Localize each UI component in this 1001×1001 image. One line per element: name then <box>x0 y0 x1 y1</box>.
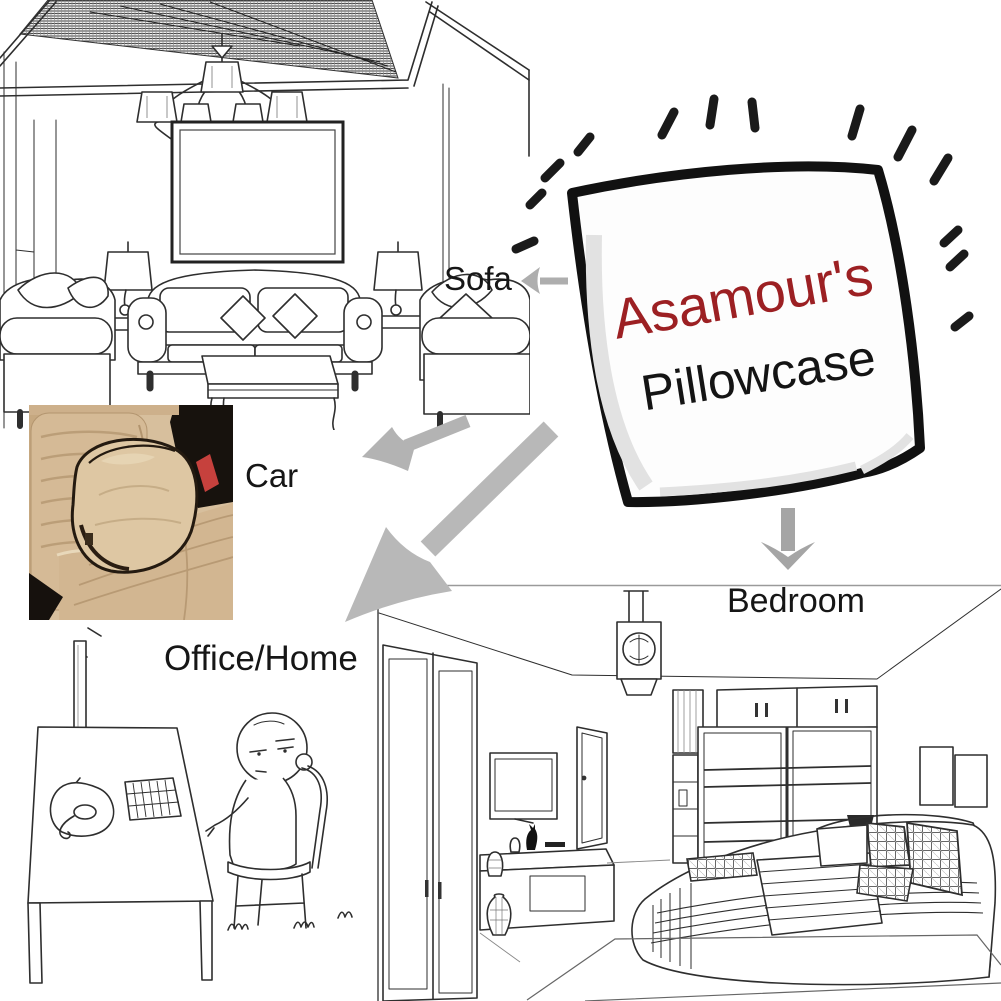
office-home-label: Office/Home <box>164 641 358 676</box>
pillowcase-usage-diagram: Asamour's Pillowcase Sofa Car Office/Hom… <box>0 0 1001 1001</box>
arrow-to-car-icon <box>362 421 468 471</box>
sofa-label: Sofa <box>444 262 512 295</box>
arrows-layer <box>0 0 1001 1001</box>
car-label: Car <box>245 459 298 492</box>
arrow-to-bedroom-icon <box>761 508 815 570</box>
bedroom-label: Bedroom <box>727 584 865 618</box>
arrow-to-sofa-icon <box>521 267 568 294</box>
